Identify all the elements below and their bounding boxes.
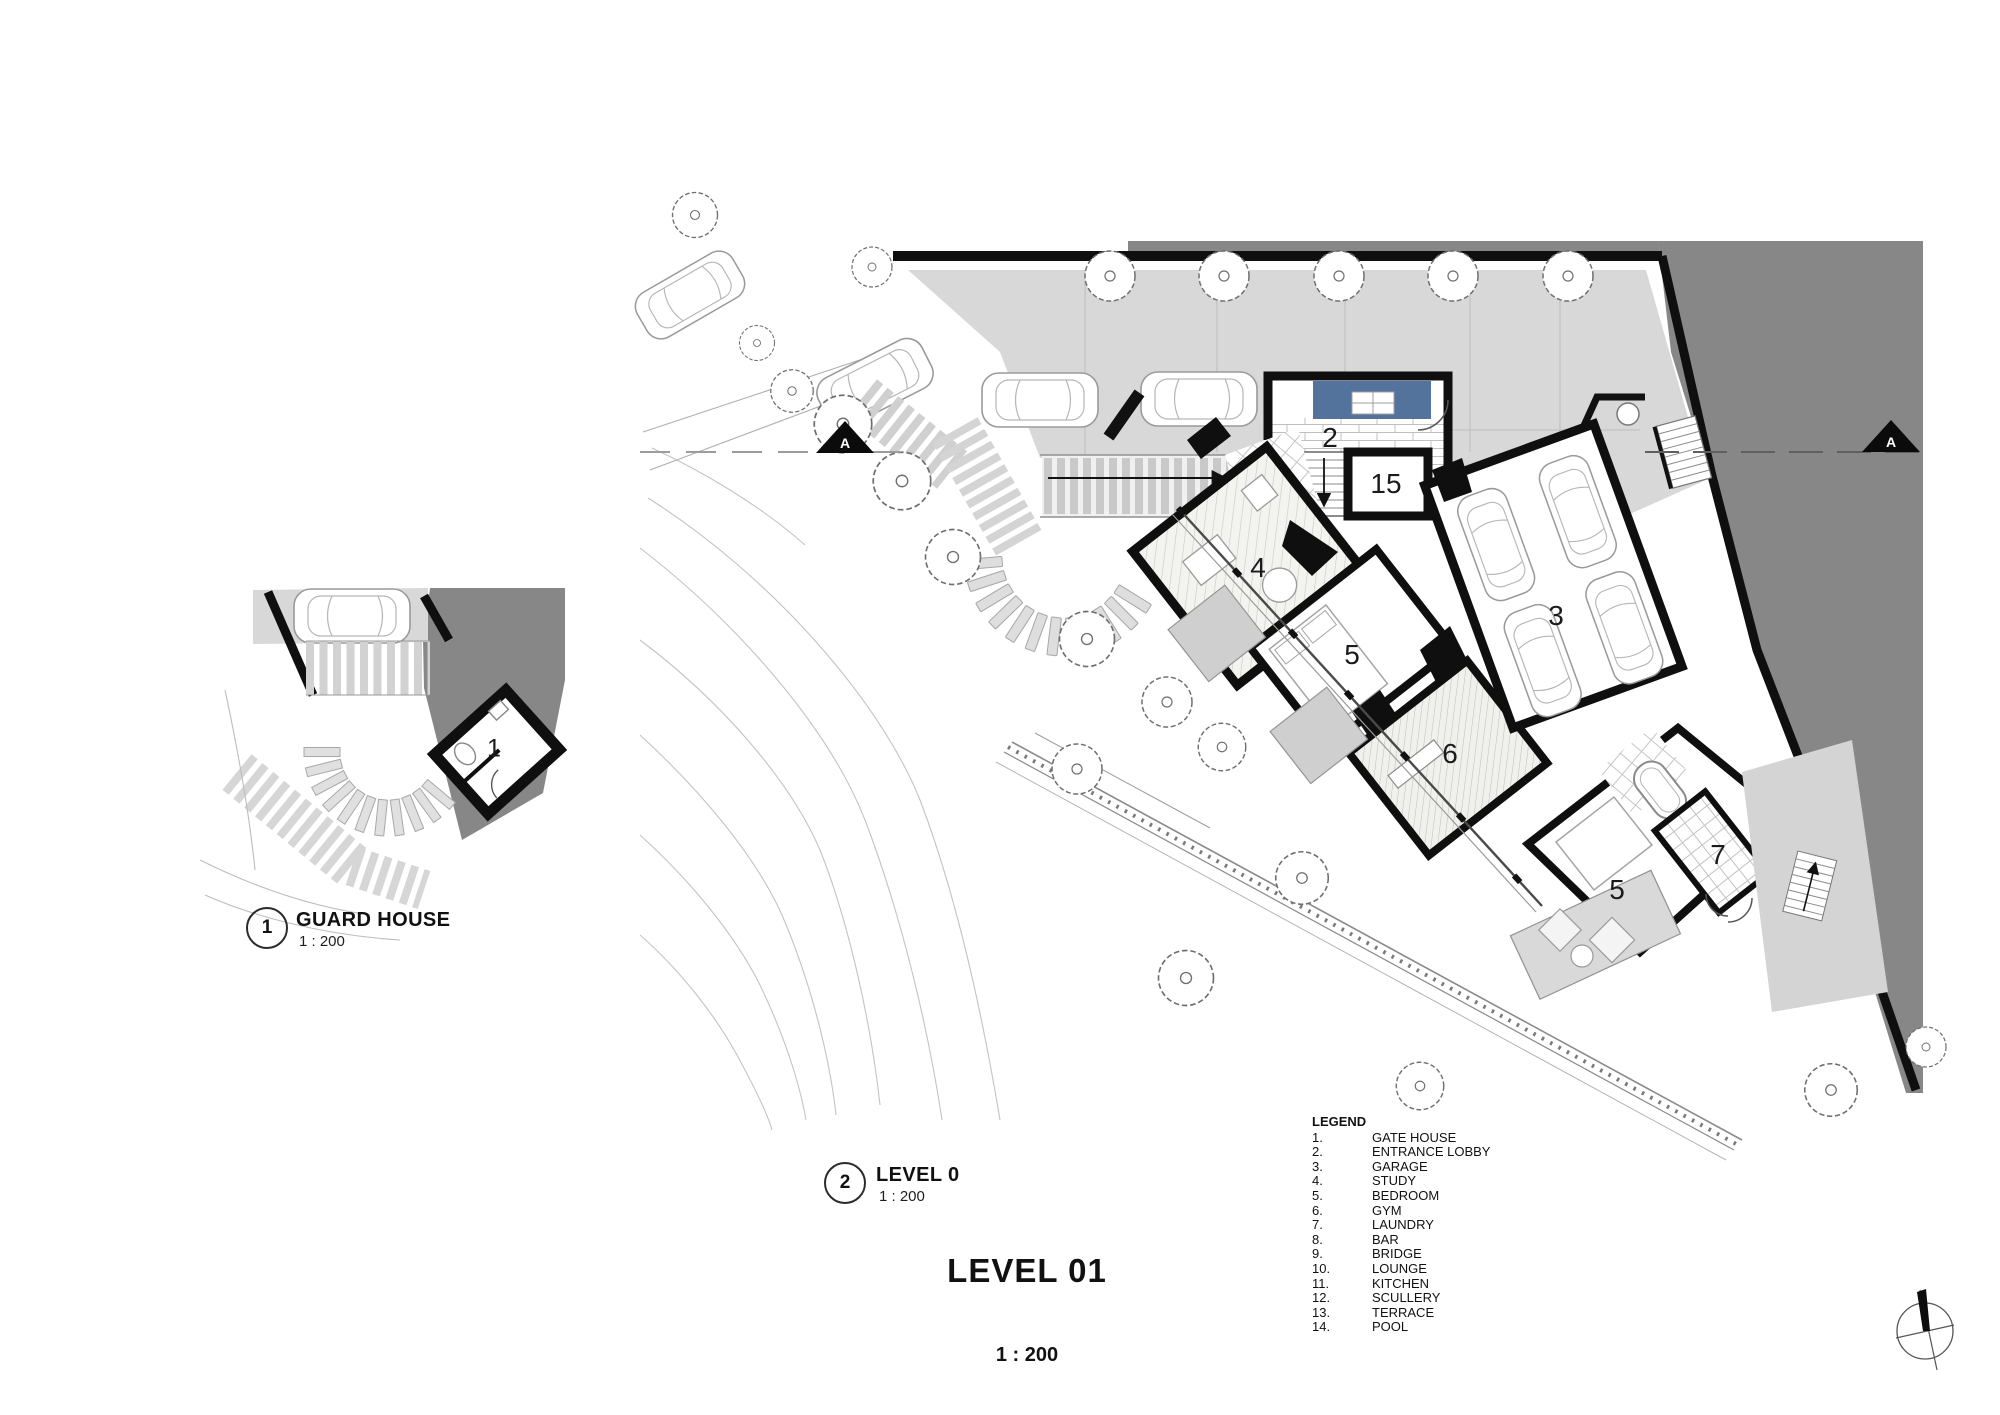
fan-steps xyxy=(964,556,1152,656)
room-label-stair-core: 15 xyxy=(1370,470,1401,498)
legend-row: 4.STUDY xyxy=(1312,1174,1490,1189)
sheet-title: LEVEL 01 xyxy=(877,1252,1177,1290)
room-label-laundry: 7 xyxy=(1710,841,1726,869)
view-scale-level0: 1 : 200 xyxy=(879,1188,925,1205)
section-marker-right: A xyxy=(1862,420,1920,452)
stair-core xyxy=(1300,452,1428,516)
room-label-bedroom-lower: 5 xyxy=(1609,876,1625,904)
view-ref-circle-level0: 2 xyxy=(824,1162,866,1204)
room-label-gym: 6 xyxy=(1442,740,1458,768)
guard-car xyxy=(294,589,410,643)
north-compass xyxy=(1880,1276,1980,1386)
sheet-scale: 1 : 200 xyxy=(877,1344,1177,1367)
legend-title: LEGEND xyxy=(1312,1115,1490,1130)
view-ref-circle-guard-house: 1 xyxy=(246,907,288,949)
view-title-guard-house: GUARD HOUSE xyxy=(296,909,450,932)
legend-row: 12.SCULLERY xyxy=(1312,1291,1490,1306)
legend-row: 6.GYM xyxy=(1312,1204,1490,1219)
legend-row: 5.BEDROOM xyxy=(1312,1189,1490,1204)
legend-row: 11.KITCHEN xyxy=(1312,1277,1490,1292)
room-label-garage: 3 xyxy=(1548,602,1564,630)
deck-table xyxy=(1571,945,1593,967)
view-title-level0: LEVEL 0 xyxy=(876,1164,960,1187)
terrain-contours xyxy=(640,345,1000,1130)
north-compass-icon xyxy=(1880,1276,1980,1386)
legend-row: 13.TERRACE xyxy=(1312,1306,1490,1321)
section-marker-letter: A xyxy=(816,435,874,451)
legend-row: 7.LAUNDRY xyxy=(1312,1218,1490,1233)
legend-row: 10.LOUNGE xyxy=(1312,1262,1490,1277)
room-label-bedroom-mid: 5 xyxy=(1344,641,1360,669)
legend-row: 9.BRIDGE xyxy=(1312,1247,1490,1262)
view-scale-guard-house: 1 : 200 xyxy=(299,933,345,950)
legend-row: 8.BAR xyxy=(1312,1233,1490,1248)
water-feature-steps xyxy=(1352,392,1394,414)
room-label-study: 4 xyxy=(1250,554,1266,582)
legend-row: 2.ENTRANCE LOBBY xyxy=(1312,1145,1490,1160)
section-marker-letter: A xyxy=(1862,434,1920,450)
legend-row: 1.GATE HOUSE xyxy=(1312,1131,1490,1146)
legend: LEGEND 1.GATE HOUSE 2.ENTRANCE LOBBY 3.G… xyxy=(1312,1115,1490,1335)
floor-plan-canvas xyxy=(0,0,2000,1415)
guard-house-plan xyxy=(200,588,565,940)
legend-row: 3.GARAGE xyxy=(1312,1160,1490,1175)
legend-row: 14.POOL xyxy=(1312,1320,1490,1335)
drawing-sheet: 1 2 15 3 4 5 6 5 7 A A 1 GUARD HOUSE 1 :… xyxy=(0,0,2000,1415)
section-marker-left: A xyxy=(816,421,874,453)
room-label-guard-house: 1 xyxy=(487,737,501,762)
room-label-entrance-lobby: 2 xyxy=(1322,424,1338,452)
main-plan-level0 xyxy=(629,193,1946,1161)
